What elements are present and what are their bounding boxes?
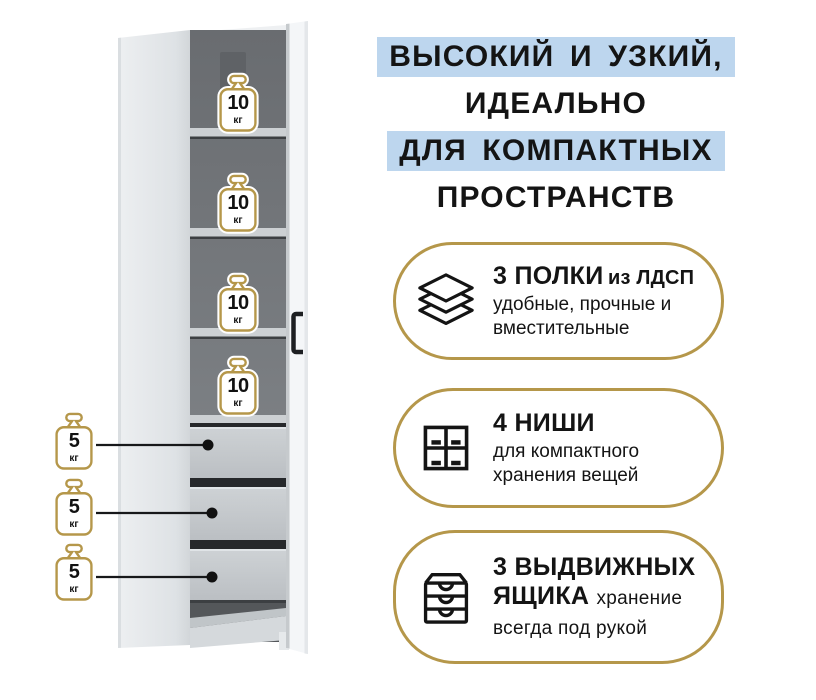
headline-line-3: ДЛЯ КОМПАКТНЫХ xyxy=(387,131,724,171)
feature-drawers: 3 ВЫДВИЖНЫХ ЯЩИКА хранение всегда под ру… xyxy=(393,530,724,664)
weight-unit: кг xyxy=(216,215,260,226)
headline: ВЫСОКИЙ И УЗКИЙ, ИДЕАЛЬНО ДЛЯ КОМПАКТНЫХ… xyxy=(352,33,760,221)
cabinet-side-panel xyxy=(118,30,190,648)
weight-value: 10 xyxy=(216,92,260,115)
shelf-weight-badge: 10 кг xyxy=(216,172,260,234)
niches-grid-icon xyxy=(416,424,476,472)
product-infographic: 10 кг 10 кг 10 кг 10 кг xyxy=(0,0,816,700)
cabinet-open-door xyxy=(286,21,308,654)
weight-unit: кг xyxy=(216,315,260,326)
weight-unit: кг xyxy=(52,453,96,464)
headline-line-1: ВЫСОКИЙ И УЗКИЙ, xyxy=(377,37,734,77)
weight-value: 10 xyxy=(216,375,260,398)
weight-value: 5 xyxy=(52,430,96,453)
feature-shelves-description: удобные, прочные и вместительные xyxy=(493,293,703,340)
weight-unit: кг xyxy=(216,115,260,126)
drawer-weight-badge: 5 кг xyxy=(52,476,96,538)
drawer-chest-icon xyxy=(416,568,476,626)
layers-shelves-icon xyxy=(416,273,476,329)
headline-line-2: ИДЕАЛЬНО xyxy=(453,84,659,124)
drawer-weight-badge: 5 кг xyxy=(52,541,96,603)
headline-line-4: ПРОСТРАНСТВ xyxy=(425,178,688,218)
feature-niches-description: для компактного хранения вещей xyxy=(493,440,703,487)
weight-unit: кг xyxy=(52,584,96,595)
callout-dot xyxy=(207,572,218,583)
feature-niches: 4 НИШИ для компактного хранения вещей xyxy=(393,388,724,508)
weight-value: 10 xyxy=(216,292,260,315)
weight-value: 5 xyxy=(52,496,96,519)
drawer-weight-badge: 5 кг xyxy=(52,410,96,472)
shelf-weight-badge: 10 кг xyxy=(216,272,260,334)
shelf-weight-badge: 10 кг xyxy=(216,355,260,417)
weight-value: 5 xyxy=(52,561,96,584)
callout-dot xyxy=(203,440,214,451)
weight-value: 10 xyxy=(216,192,260,215)
feature-shelves-note: из ЛДСП xyxy=(608,267,694,289)
shelf-weight-badge: 10 кг xyxy=(216,72,260,134)
callout-dot xyxy=(207,508,218,519)
feature-niches-title: 4 НИШИ xyxy=(493,409,595,437)
feature-shelves: 3 ПОЛКИ из ЛДСП удобные, прочные и вмест… xyxy=(393,242,724,360)
weight-unit: кг xyxy=(52,519,96,530)
feature-shelves-title: 3 ПОЛКИ xyxy=(493,262,604,290)
cabinet-bottom-niche xyxy=(190,603,286,648)
weight-unit: кг xyxy=(216,398,260,409)
